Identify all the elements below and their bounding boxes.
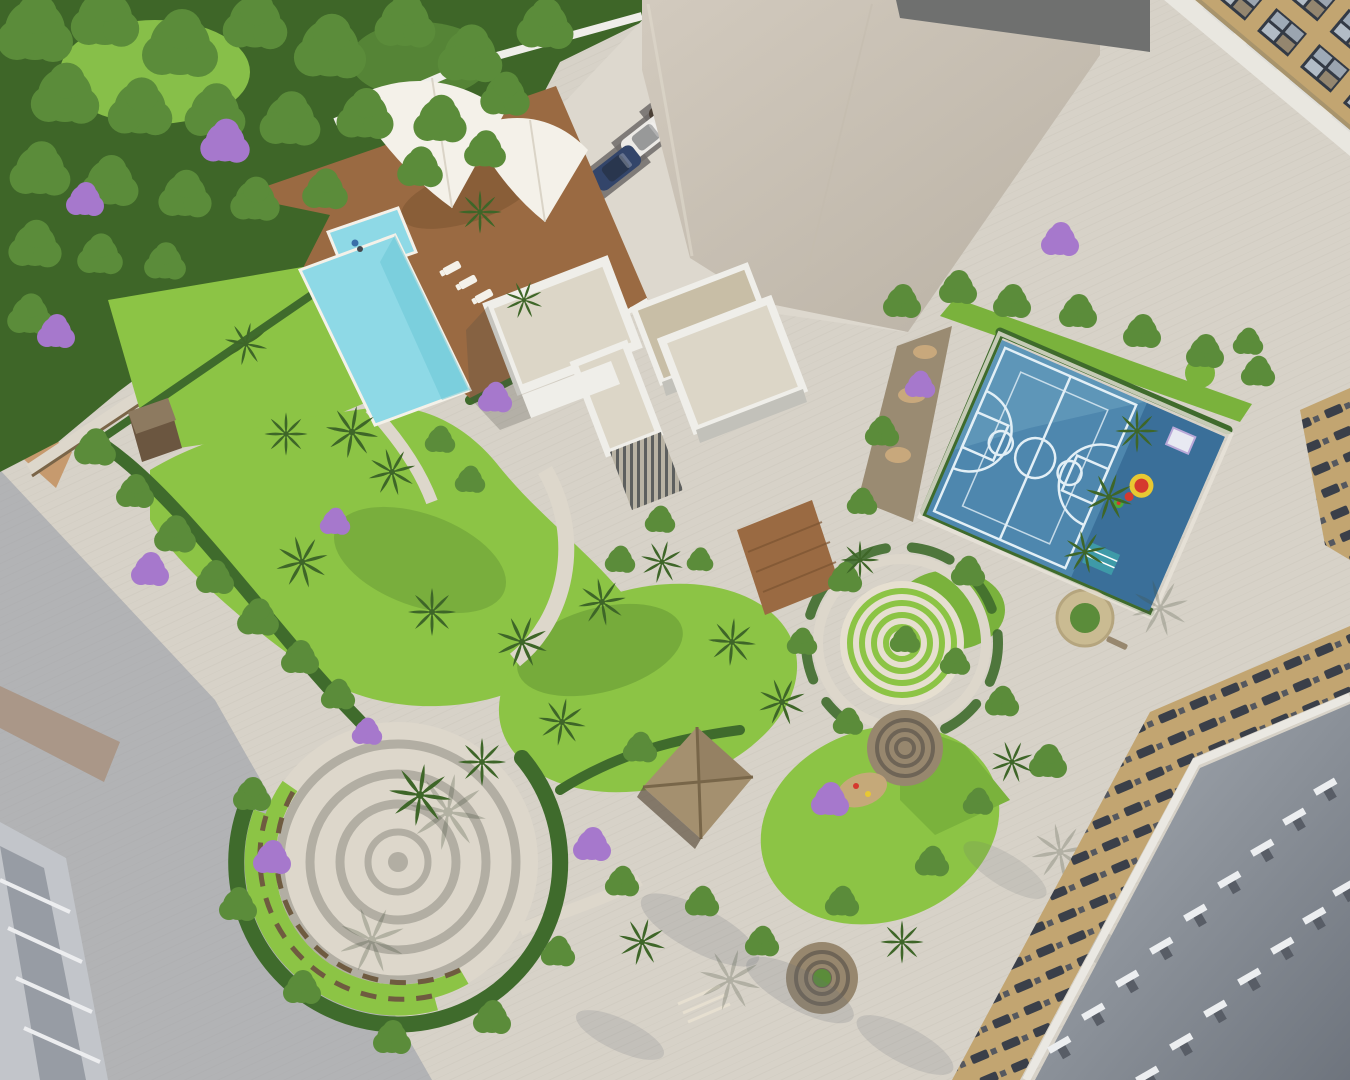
- palm-tree: [458, 190, 501, 233]
- sand-patch-2: [885, 447, 911, 463]
- sand-patch-3: [913, 345, 937, 359]
- palm-tree: [880, 920, 923, 963]
- planter-bush: [1070, 603, 1100, 633]
- palm-tree: [408, 588, 456, 636]
- plaza-centre: [388, 852, 408, 872]
- palm-tree: [841, 541, 879, 579]
- palm-tree: [264, 412, 307, 455]
- palm-tree: [458, 738, 506, 786]
- forest-tree: [71, 0, 139, 47]
- palm-tree: [1115, 409, 1158, 452]
- aerial-render: [0, 0, 1350, 1080]
